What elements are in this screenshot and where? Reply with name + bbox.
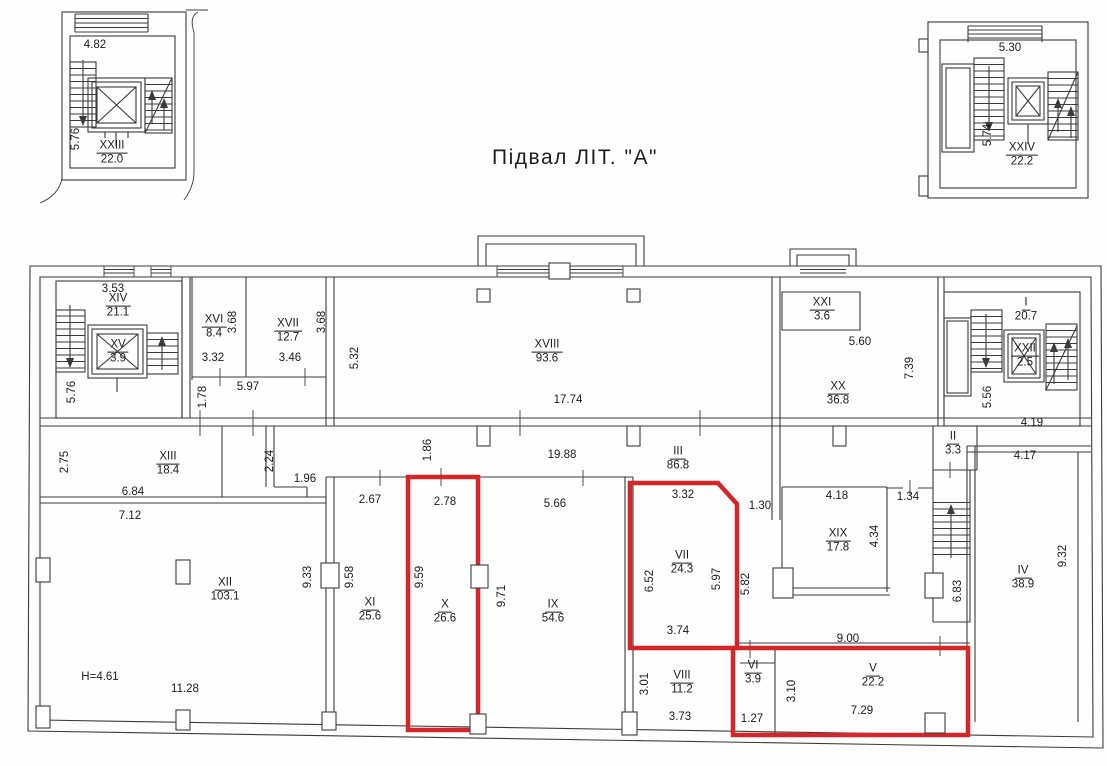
room-numeral: VIII — [670, 670, 693, 684]
dimension-label: 9.00 — [837, 633, 859, 645]
room-area: 21.1 — [107, 307, 129, 320]
room-area: 18.4 — [157, 465, 179, 478]
dimension-label: 5.30 — [999, 42, 1021, 54]
room-area: 8.4 — [206, 328, 222, 341]
room-numeral: XII — [215, 577, 235, 591]
floor-plan-drawing — [0, 0, 1107, 766]
dimension-label: 3.01 — [639, 673, 651, 695]
dimension-label: 6.83 — [952, 580, 964, 602]
dimension-label: 3.68 — [227, 311, 239, 333]
dimension-label: 3.46 — [279, 352, 301, 364]
room-area: 103.1 — [211, 591, 240, 604]
room-area: 25.6 — [359, 611, 381, 624]
dimension-label: 4.18 — [826, 490, 848, 502]
room-label-X: X26.6 — [434, 599, 456, 626]
room-area: 3.6 — [814, 311, 830, 324]
dimension-label: 5.60 — [849, 336, 871, 348]
room-area: 12.7 — [277, 332, 299, 345]
dimension-label: 9.58 — [344, 566, 356, 588]
room-label-XXII: XXII2.5 — [1011, 343, 1039, 370]
dimension-label: 7.29 — [851, 705, 873, 717]
room-area: 38.9 — [1012, 579, 1034, 592]
dimension-label: 5.66 — [544, 498, 566, 510]
room-numeral: XV — [107, 339, 128, 353]
dimension-label: 2.75 — [59, 451, 71, 473]
room-label-XI: XI25.6 — [359, 597, 381, 624]
room-area: 54.6 — [542, 613, 564, 626]
room-numeral: I — [1021, 297, 1030, 311]
dimension-label: 4.34 — [869, 525, 881, 547]
room-numeral: II — [947, 431, 959, 445]
dimension-label: 7.39 — [904, 357, 916, 379]
dimension-label: 7.12 — [119, 510, 141, 522]
room-numeral: XXIV — [1006, 142, 1038, 156]
room-numeral: XIX — [826, 528, 851, 542]
room-label-VIII: VIII11.2 — [670, 670, 693, 697]
dimension-label: 3.32 — [672, 489, 694, 501]
dimension-label: 5.97 — [237, 381, 259, 393]
room-area: 3.9 — [110, 353, 126, 366]
main-building-outline — [28, 236, 1103, 748]
room-numeral: XXIII — [97, 140, 128, 154]
room-area: 17.8 — [827, 542, 849, 555]
dimension-label: 9.71 — [496, 585, 508, 607]
room-numeral: X — [438, 599, 452, 613]
room-numeral: III — [670, 446, 686, 460]
room-area: 11.2 — [671, 684, 693, 697]
dimension-label: 1.27 — [741, 713, 763, 725]
room-area: 86.8 — [667, 460, 689, 473]
dimension-label: 2.78 — [434, 496, 456, 508]
dimension-label: 5.76 — [70, 128, 82, 150]
dimension-label: 3.10 — [786, 680, 798, 702]
dimension-label: 4.19 — [1021, 417, 1043, 429]
room-numeral: XXI — [810, 297, 835, 311]
room-label-XXIV: XXIV22.2 — [1006, 142, 1038, 169]
dimension-label: 3.32 — [202, 352, 224, 364]
dimension-label: 11.28 — [171, 683, 199, 695]
room-area: 24.3 — [671, 564, 693, 577]
dimension-label: 1.86 — [422, 439, 434, 461]
room-numeral: VI — [745, 660, 762, 674]
floorplan-sheet: Підвал ЛІТ. "А" XXIII22.0XXIV22.2XIV21.1… — [0, 0, 1107, 766]
dimension-label: 9.33 — [302, 566, 314, 588]
room-label-XIII: XIII18.4 — [156, 451, 179, 478]
room-label-XVIII: XVIII93.6 — [532, 339, 563, 366]
dimension-label: 3.74 — [667, 625, 689, 637]
room-label-XXIII: XXIII22.0 — [97, 140, 128, 167]
room-label-XVII: XVII12.7 — [274, 318, 302, 345]
room-area: 22.0 — [101, 154, 123, 167]
room-numeral: V — [866, 663, 880, 677]
room-label-III: III86.8 — [667, 446, 689, 473]
room-numeral: XI — [362, 597, 379, 611]
room-label-XIX: XIX17.8 — [826, 528, 851, 555]
dimension-label: 5.56 — [982, 386, 994, 408]
room-label-VII: VII24.3 — [671, 550, 693, 577]
room-label-VI: VI3.9 — [745, 660, 762, 687]
dimension-label: 5.82 — [740, 573, 752, 595]
room-area: 3.3 — [945, 445, 961, 458]
room-numeral: VII — [672, 550, 692, 564]
room-label-XIV: XIV21.1 — [106, 293, 131, 320]
room-area: 36.8 — [827, 395, 849, 408]
room-label-IX: IX54.6 — [542, 599, 564, 626]
dimension-label: H=4.61 — [81, 671, 118, 683]
room-label-IV: IV38.9 — [1012, 565, 1034, 592]
dimension-label: 5.32 — [349, 347, 361, 369]
dimension-label: 5.76 — [66, 381, 78, 403]
room-numeral: XX — [827, 381, 848, 395]
dimension-label: 6.52 — [644, 570, 656, 592]
dimension-label: 2.67 — [359, 494, 381, 506]
room-area: 20.7 — [1015, 311, 1037, 324]
room-label-XX: XX36.8 — [827, 381, 849, 408]
room-numeral: XVIII — [532, 339, 563, 353]
room-area: 3.9 — [745, 674, 761, 687]
dimension-label: 4.17 — [1014, 450, 1036, 462]
room-numeral: IV — [1015, 565, 1032, 579]
dimension-label: 19.88 — [548, 449, 577, 461]
room-numeral: XVII — [274, 318, 302, 332]
dimension-label: 1.30 — [749, 500, 771, 512]
detached-stairwell-left — [40, 10, 208, 203]
dimension-label: 17.74 — [554, 394, 583, 406]
room-numeral: XVI — [202, 314, 227, 328]
room-label-XXI: XXI3.6 — [810, 297, 835, 324]
room-label-XVI: XVI8.4 — [202, 314, 227, 341]
dimension-label: 5.74 — [982, 124, 994, 146]
dimension-label: 1.78 — [197, 386, 209, 408]
room-label-V: V22.2 — [862, 663, 884, 690]
room-label-I: I20.7 — [1015, 297, 1037, 324]
room-area: 22.2 — [1011, 156, 1033, 169]
dimension-label: 5.97 — [711, 568, 723, 590]
plan-title: Підвал ЛІТ. "А" — [492, 146, 658, 170]
dimension-label: 3.73 — [669, 711, 691, 723]
dimension-label: 2.24 — [264, 450, 276, 472]
room-area: 26.6 — [434, 613, 456, 626]
room-numeral: XIII — [156, 451, 179, 465]
dimension-label: 1.96 — [294, 473, 316, 485]
dimension-label: 9.59 — [414, 566, 426, 588]
room-area: 93.6 — [536, 353, 558, 366]
dimension-label: 3.53 — [102, 283, 124, 295]
room-area: 22.2 — [862, 677, 884, 690]
room-area: 2.5 — [1017, 357, 1033, 370]
room-label-II: II3.3 — [945, 431, 961, 458]
dimension-label: 3.68 — [316, 311, 328, 333]
dimension-label: 9.32 — [1057, 545, 1069, 567]
room-numeral: XXII — [1011, 343, 1039, 357]
room-label-XV: XV3.9 — [107, 339, 128, 366]
dimension-label: 1.34 — [897, 491, 919, 503]
dimension-label: 4.82 — [84, 39, 106, 51]
dimension-label: 6.84 — [122, 486, 144, 498]
room-label-XII: XII103.1 — [211, 577, 240, 604]
room-numeral: IX — [545, 599, 562, 613]
